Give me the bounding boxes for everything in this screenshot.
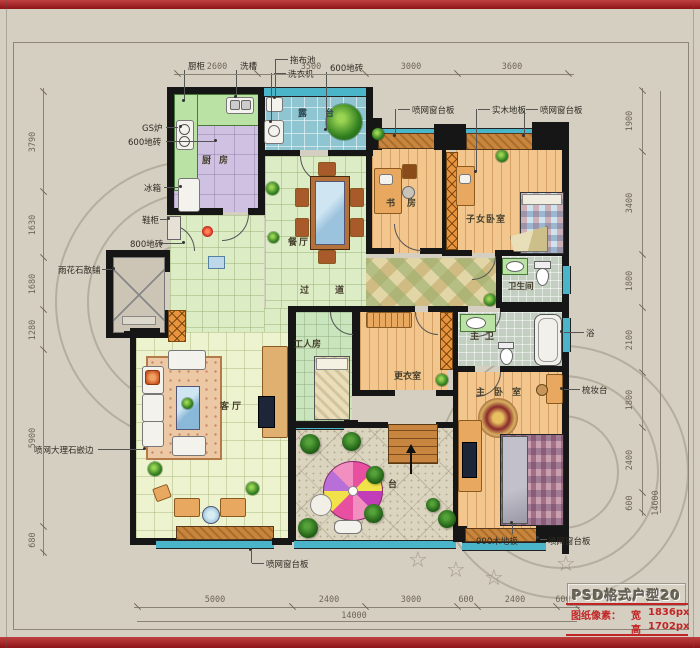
plant — [148, 462, 162, 476]
leader-dot — [560, 387, 563, 390]
pixels-height-value: 1702px — [648, 621, 689, 632]
annotation-bath: 浴 — [586, 327, 595, 339]
dim-bottom-2: 2400 — [309, 595, 349, 605]
wall-segment — [106, 250, 170, 257]
leader-dot — [179, 125, 182, 128]
terrace-railing — [294, 540, 456, 549]
floor-plan-page: { "dims": { "top": ["2600", "3500", "300… — [0, 0, 700, 648]
wall-segment — [366, 248, 394, 254]
annotation-sill-bottom-right: 喷网窗台板 — [548, 535, 591, 547]
room-label-master-bath: 主卫 — [470, 329, 500, 342]
entry-cabinet-hatch — [168, 310, 186, 342]
dressing-cabinet — [366, 312, 412, 328]
dim-top-4: 3600 — [492, 62, 532, 72]
plant — [496, 150, 508, 162]
kids-laptop — [459, 174, 471, 184]
dim-left-5: 5900 — [28, 420, 38, 456]
room-label-terrace: 台 — [388, 477, 397, 490]
leader-dot — [182, 241, 185, 244]
shaft-landing — [122, 316, 156, 325]
leader-dot — [112, 267, 115, 270]
wall-segment — [130, 328, 136, 545]
worker-bed-pillow — [316, 358, 348, 370]
wall-segment — [292, 422, 388, 428]
pixels-width-value: 1836px — [648, 607, 689, 618]
leader-line — [564, 389, 580, 390]
master-bath-window — [562, 318, 571, 352]
right-edge-shadow — [693, 0, 694, 648]
leader-line — [251, 551, 252, 563]
watermark-star: ☆ — [408, 548, 428, 573]
annotation-sill-top-left: 喷网窗台板 — [412, 104, 455, 116]
bush — [364, 504, 383, 523]
leader-line — [326, 72, 327, 130]
leader-dot — [560, 330, 563, 333]
sofa-seat — [142, 421, 164, 447]
room-label-dining: 餐厅 — [288, 235, 310, 248]
patio-table — [310, 494, 332, 516]
dining-chair — [350, 218, 364, 237]
bush — [298, 518, 318, 538]
leader-line — [512, 524, 513, 534]
dim-top-3: 3000 — [391, 62, 431, 72]
wall-segment — [167, 87, 174, 215]
master-blanket — [502, 436, 528, 524]
dressing-stool — [536, 384, 548, 396]
leader-line — [160, 243, 182, 244]
dim-right-2: 3400 — [625, 185, 635, 221]
living-window-sill — [176, 526, 274, 540]
bush — [300, 434, 320, 454]
annotation-sill-bottom-left: 喷网窗台板 — [266, 558, 309, 570]
watermark-star: ☆ — [446, 558, 466, 583]
leader-line — [98, 449, 144, 450]
dim-line-left — [43, 88, 44, 556]
leader-line — [540, 539, 547, 540]
leader-dot — [510, 521, 513, 524]
leader-line — [164, 187, 178, 188]
leader-line — [478, 109, 490, 110]
bathroom-window — [562, 266, 571, 294]
dim-bottom-4: 600 — [453, 595, 479, 605]
dim-right-6: 2400 — [625, 442, 635, 478]
study-computer — [379, 174, 393, 185]
leader-dot — [393, 134, 396, 137]
dim-left-4: 1280 — [28, 312, 38, 348]
room-label-corridor: 过道 — [300, 283, 370, 296]
leader-line — [524, 109, 525, 135]
leader-line — [395, 109, 396, 135]
leader-line — [166, 141, 214, 142]
leader-line — [252, 563, 264, 564]
room-label-balcony: 露台 — [298, 106, 352, 119]
pixels-label: 图纸像素： — [571, 607, 621, 622]
leader-dot — [273, 96, 276, 99]
side-table — [202, 506, 220, 524]
wall-segment — [106, 250, 113, 338]
entry-flower-decor — [202, 226, 213, 237]
wall-segment — [500, 366, 569, 372]
leader-line — [564, 332, 584, 333]
room-label-master-bedroom: 主卧室 — [476, 385, 530, 398]
room-label-kids-bedroom: 子女卧室 — [466, 212, 506, 225]
entry-arrow-stem — [410, 450, 412, 474]
dim-left-2: 1630 — [28, 207, 38, 243]
dim-right-7: 600 — [625, 485, 635, 521]
left-edge-shadow — [6, 0, 7, 648]
wall-segment — [167, 87, 265, 94]
wall-segment — [442, 250, 472, 256]
leader-dot — [214, 139, 217, 142]
plant — [484, 294, 496, 306]
patio-bench — [334, 520, 362, 534]
study-side-table — [402, 164, 417, 179]
mop-pool — [266, 97, 283, 112]
title-bottom-line — [566, 634, 688, 636]
plant — [246, 482, 259, 495]
leader-line — [166, 127, 178, 128]
wall-segment — [436, 390, 458, 396]
dim-line-top — [174, 74, 574, 75]
bush — [426, 498, 440, 512]
bathtub-inner — [538, 318, 558, 362]
sofa-loveseat — [172, 436, 206, 456]
refrigerator — [178, 178, 200, 212]
dim-line-bottom — [134, 607, 580, 608]
round-rug — [478, 398, 518, 438]
leader-dot — [324, 128, 327, 131]
annotation-solid-wood-floor: 实木地板 — [492, 104, 526, 116]
dim-top-2: 3500 — [291, 62, 331, 72]
leader-line — [102, 269, 112, 270]
dim-right-1: 1900 — [625, 103, 635, 139]
annotation-tile-800: 800地砖 — [130, 238, 163, 250]
annotation-dresser: 梳妆台 — [582, 384, 608, 396]
leader-dot — [474, 170, 477, 173]
wall-segment — [272, 538, 292, 545]
sink-basin — [230, 100, 240, 110]
wall-segment — [248, 208, 265, 215]
entry-mat-decor — [208, 256, 225, 269]
leader-dot — [249, 548, 252, 551]
pixels-width-label: 宽 — [631, 607, 641, 622]
leader-dot — [522, 134, 525, 137]
annotation-rain-stone: 雨花石散铺 — [58, 264, 101, 276]
wall-segment — [453, 306, 458, 372]
master-sink — [466, 317, 486, 329]
dim-bottom-5: 2400 — [495, 595, 535, 605]
leader-line — [476, 109, 477, 171]
annotation-tile-600-left: 600地砖 — [128, 136, 161, 148]
kids-bed-pillow — [522, 194, 562, 205]
leader-dot — [167, 217, 170, 220]
leader-line — [276, 59, 288, 60]
dim-line-bottom-total — [137, 621, 577, 622]
room-label-dressing-room: 更衣室 — [394, 369, 421, 382]
wall-segment — [434, 124, 466, 150]
wall-segment — [436, 422, 458, 428]
wall-segment — [258, 87, 265, 215]
leader-line — [398, 109, 410, 110]
dim-right-3: 1800 — [625, 263, 635, 299]
coffee-table-plant — [182, 398, 193, 409]
armchair — [174, 498, 200, 517]
wall-segment — [366, 146, 372, 254]
leader-dot — [269, 120, 272, 123]
washer-drum — [268, 125, 280, 137]
dining-chair — [350, 188, 364, 207]
dining-table-glass — [315, 181, 345, 245]
watermark-star: ☆ — [484, 566, 504, 591]
dim-top-1: 2600 — [197, 62, 237, 72]
bush — [438, 510, 456, 528]
dim-bottom-total: 14000 — [332, 611, 376, 621]
wall-segment — [500, 306, 569, 312]
dim-bottom-3: 3000 — [391, 595, 431, 605]
annotation-sill-top-right: 喷网窗台板 — [540, 104, 583, 116]
annotation-wood-900: 900木地板 — [476, 535, 518, 547]
hall-connector-floor — [264, 308, 288, 334]
annotation-tile-600-top: 600地砖 — [330, 62, 363, 74]
dining-chair — [318, 162, 336, 176]
plant — [436, 374, 448, 386]
sink-basin — [241, 100, 251, 110]
dining-chair — [318, 250, 336, 264]
leader-line — [160, 219, 167, 220]
title-underline — [566, 603, 688, 605]
dim-line-right-total — [660, 91, 661, 513]
kids-desk — [456, 166, 475, 206]
dim-bottom-1: 5000 — [195, 595, 235, 605]
dining-chair — [295, 188, 309, 207]
dim-right-total: 14600 — [651, 481, 661, 525]
armchair — [220, 498, 246, 517]
bush — [366, 466, 384, 484]
room-label-bathroom: 卫生间 — [508, 280, 534, 292]
room-label-living-room: 客厅 — [220, 399, 244, 412]
bottom-red-bar — [0, 637, 700, 648]
balcony-window — [264, 87, 367, 97]
leader-line — [275, 59, 276, 97]
living-window — [156, 540, 274, 549]
sofa-cushion — [145, 370, 160, 385]
room-label-study: 书房 — [386, 196, 428, 209]
dim-right-5: 1800 — [625, 382, 635, 418]
entry-arrow-head — [406, 444, 416, 453]
leader-line — [526, 109, 538, 110]
leader-dot — [234, 95, 237, 98]
annotation-fridge: 冰箱 — [144, 182, 161, 194]
dim-right-4: 2100 — [625, 322, 635, 358]
leader-dot — [536, 536, 539, 539]
leader-dot — [182, 99, 185, 102]
dim-left-1: 3790 — [28, 124, 38, 160]
plant — [266, 182, 279, 195]
plant — [372, 128, 384, 140]
bush — [342, 432, 361, 451]
dim-left-3: 1680 — [28, 266, 38, 302]
annotation-gas-stove: GS炉 — [142, 122, 162, 134]
sofa-loveseat — [168, 350, 206, 370]
wall-segment — [355, 390, 395, 396]
wall-segment — [124, 331, 136, 338]
umbrella-pole — [348, 486, 358, 496]
study-window-sill — [378, 133, 436, 149]
room-label-worker-room: 工人房 — [294, 337, 321, 350]
room-label-kitchen: 厨房 — [202, 153, 236, 166]
plant — [268, 232, 279, 243]
leader-dot — [143, 447, 146, 450]
tv-living — [258, 396, 275, 428]
dressing-wardrobe-hatch — [440, 312, 453, 370]
tv-master — [462, 442, 477, 478]
leader-dot — [179, 185, 182, 188]
sofa-seat — [142, 394, 164, 422]
watermark-star: ☆ — [556, 552, 576, 577]
top-red-bar — [0, 0, 700, 9]
leader-line — [271, 73, 272, 121]
wall-segment — [265, 150, 300, 156]
dim-left-6: 680 — [28, 522, 38, 558]
annotation-shoe-cabinet: 鞋柜 — [142, 214, 159, 226]
bathroom-sink — [506, 261, 524, 272]
